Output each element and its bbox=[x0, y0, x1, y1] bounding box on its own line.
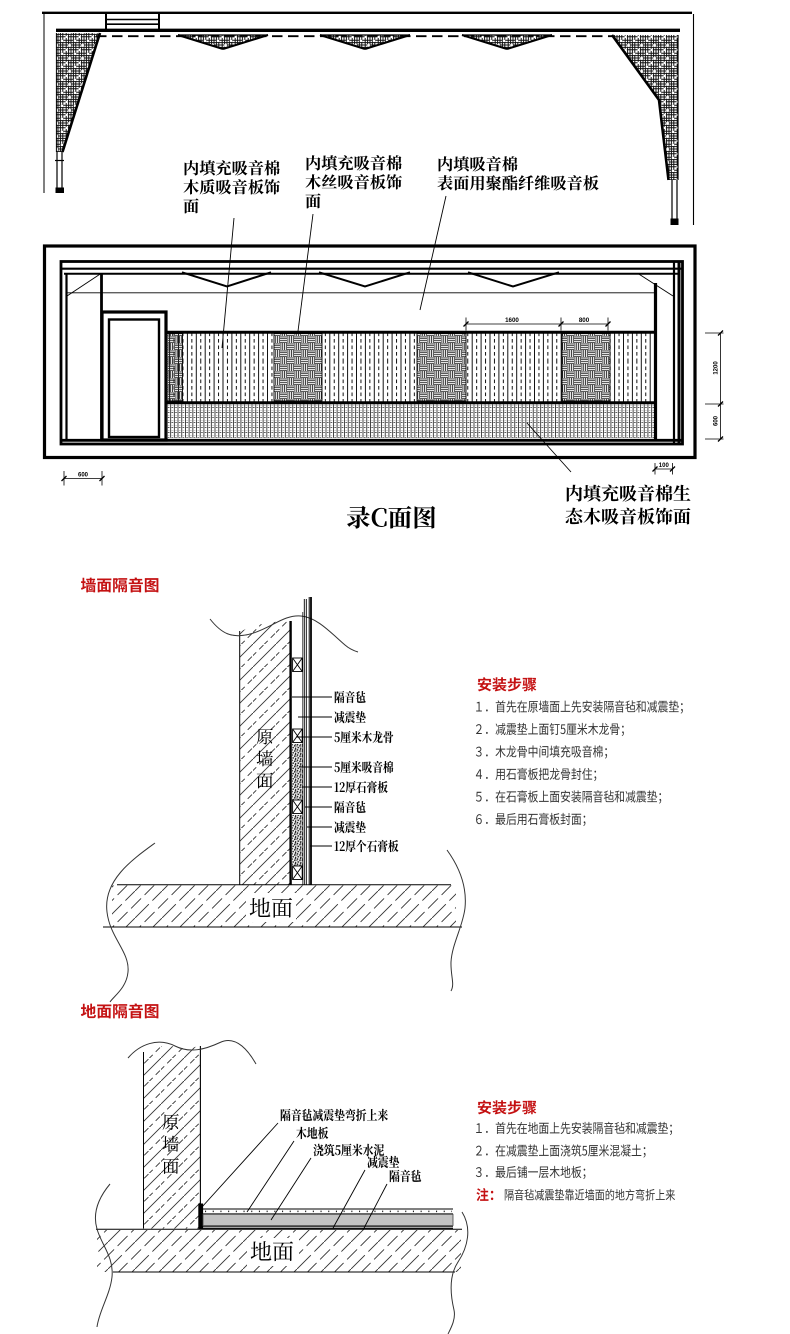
svg-text:600: 600 bbox=[714, 415, 720, 426]
svg-text:1600: 1600 bbox=[505, 317, 519, 324]
svg-text:800: 800 bbox=[579, 317, 590, 324]
svg-text:100: 100 bbox=[659, 463, 670, 469]
svg-text:1200: 1200 bbox=[714, 361, 720, 375]
svg-text:600: 600 bbox=[78, 473, 89, 479]
